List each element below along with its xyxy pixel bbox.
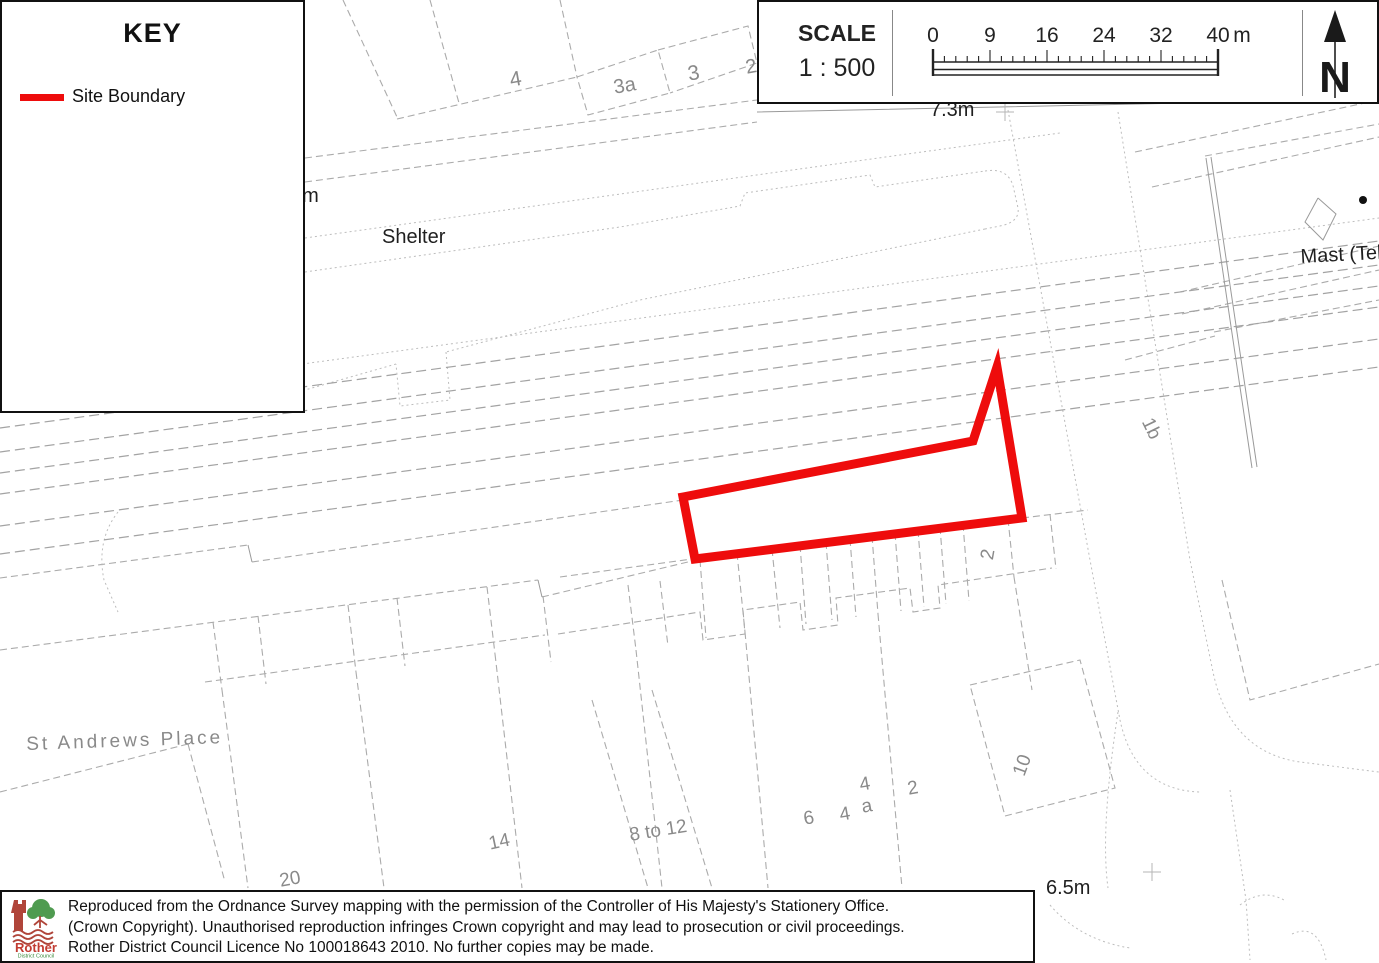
legend-item-label: Site Boundary <box>72 86 185 107</box>
scale-tick-label: 0 <box>918 24 948 48</box>
map-label: 1b <box>1138 415 1164 442</box>
map-label: 4 <box>858 774 872 795</box>
map-label: a <box>860 796 874 817</box>
rother-district-council-logo: Rother District Council <box>9 894 63 958</box>
copyright-line: Rother District Council Licence No 10001… <box>68 938 905 959</box>
map-label: 6.5m <box>1046 878 1090 898</box>
map-label: 3 <box>686 62 701 85</box>
mast-dot-marker <box>1359 196 1367 204</box>
scale-tick-label: 16 <box>1032 24 1062 48</box>
copyright-line: (Crown Copyright). Unauthorised reproduc… <box>68 918 905 939</box>
scale-tick-label: 24 <box>1089 24 1119 48</box>
map-label: 4 <box>508 68 523 91</box>
scale-bar <box>927 46 1227 80</box>
copyright-line: Reproduced from the Ordnance Survey mapp… <box>68 897 905 918</box>
scale-ratio: 1 : 500 <box>777 54 897 83</box>
survey-cross-marker <box>996 103 1014 121</box>
map-label: 10 <box>1010 752 1035 778</box>
map-label: Shelter <box>382 227 445 247</box>
map-label: 14 <box>487 831 512 854</box>
map-label: 4 <box>838 804 852 825</box>
logo-subtitle: District Council <box>18 954 55 959</box>
copyright-panel: Rother District Council Reproduced from … <box>0 890 1035 963</box>
panel-divider <box>1302 10 1303 96</box>
survey-cross-marker <box>1143 863 1161 881</box>
scale-tick-label: 32 <box>1146 24 1176 48</box>
map-label: St Andrews Place <box>26 728 223 754</box>
site-plan-page: 43a327.3m4mShelterMast (Tele1b2St Andrew… <box>0 0 1379 963</box>
map-label: 20 <box>278 868 302 890</box>
key-title: KEY <box>2 18 303 49</box>
map-label: 3a <box>612 74 637 98</box>
map-label: 2 <box>978 548 999 562</box>
map-label: 2 <box>906 778 920 799</box>
panel-divider <box>892 10 893 96</box>
map-label: Mast (Tele <box>1300 242 1379 267</box>
north-arrow-icon: N <box>1307 6 1363 102</box>
legend-item-site-boundary: Site Boundary <box>2 86 303 110</box>
scale-unit-label: m <box>1227 24 1257 48</box>
map-label: 8 to 12 <box>628 817 688 845</box>
scale-word: SCALE <box>777 20 897 47</box>
north-letter: N <box>1319 53 1351 102</box>
map-label: 6 <box>802 808 816 829</box>
site-boundary-swatch <box>20 94 64 101</box>
copyright-text: Reproduced from the Ordnance Survey mapp… <box>68 897 905 959</box>
scale-tick-label: 9 <box>975 24 1005 48</box>
scale-panel: SCALE 1 : 500 0916243240m N <box>757 0 1379 104</box>
key-panel: KEY Site Boundary <box>0 0 305 413</box>
